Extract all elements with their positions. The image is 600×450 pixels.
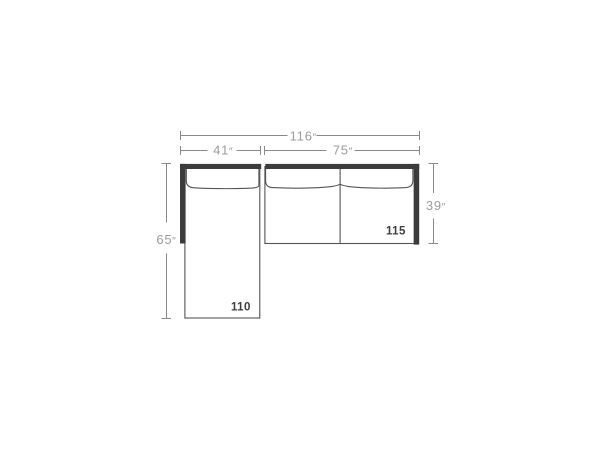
svg-text:110: 110 <box>231 302 251 314</box>
svg-text:41″: 41″ <box>213 143 233 158</box>
svg-text:39″: 39″ <box>426 198 446 213</box>
svg-text:75″: 75″ <box>333 143 353 158</box>
svg-text:116″: 116″ <box>290 128 317 143</box>
svg-text:65″: 65″ <box>156 232 176 247</box>
svg-text:115: 115 <box>386 226 406 238</box>
